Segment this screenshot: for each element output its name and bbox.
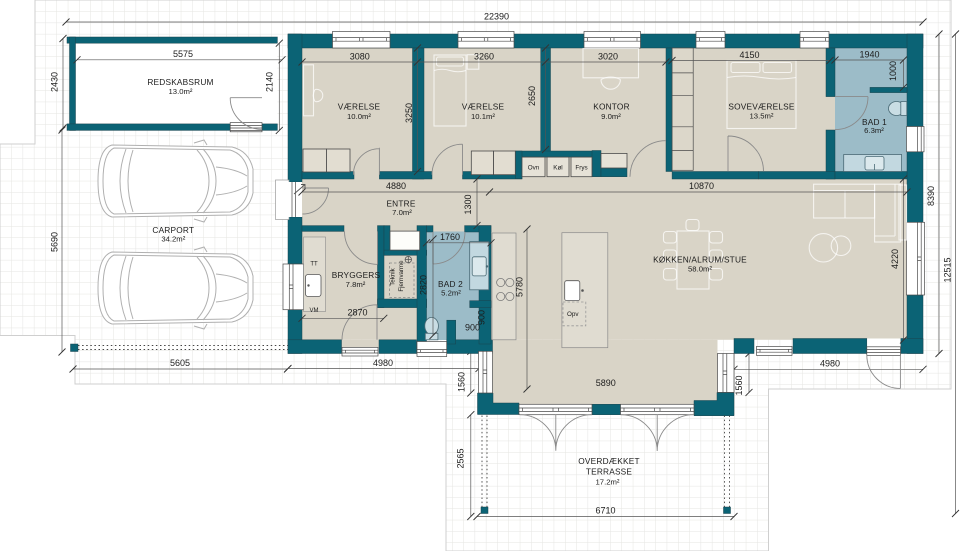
svg-text:KONTOR: KONTOR	[593, 102, 630, 112]
svg-text:3260: 3260	[474, 52, 494, 62]
svg-text:2820: 2820	[418, 275, 428, 295]
svg-text:3020: 3020	[598, 52, 618, 62]
svg-text:SOVEVÆRELSE: SOVEVÆRELSE	[728, 102, 795, 112]
svg-text:1000: 1000	[888, 61, 898, 81]
svg-text:OVERDÆKKET: OVERDÆKKET	[578, 456, 639, 466]
svg-text:7.0m²: 7.0m²	[392, 208, 412, 217]
svg-text:VÆRELSE: VÆRELSE	[338, 102, 381, 112]
svg-text:22390: 22390	[484, 12, 509, 22]
svg-text:CARPORT: CARPORT	[152, 225, 194, 235]
svg-text:Opv: Opv	[567, 311, 579, 318]
svg-text:Ovn: Ovn	[528, 164, 540, 171]
svg-text:2870: 2870	[347, 307, 367, 317]
svg-text:7.8m²: 7.8m²	[346, 280, 366, 289]
svg-text:9.0m²: 9.0m²	[601, 112, 621, 121]
svg-text:Frys: Frys	[575, 164, 587, 171]
svg-text:5690: 5690	[50, 232, 60, 252]
svg-text:10870: 10870	[689, 181, 714, 191]
svg-text:5575: 5575	[173, 49, 193, 59]
svg-text:1560: 1560	[456, 372, 466, 392]
svg-text:900: 900	[477, 310, 487, 325]
svg-text:5.2m²: 5.2m²	[441, 289, 461, 298]
svg-text:3250: 3250	[404, 103, 414, 123]
svg-text:BRYGGERS: BRYGGERS	[332, 270, 381, 280]
svg-text:17.2m²: 17.2m²	[596, 477, 620, 486]
svg-text:12515: 12515	[942, 257, 952, 282]
svg-text:Fjernvarme: Fjernvarme	[398, 260, 405, 292]
svg-text:4980: 4980	[820, 359, 840, 369]
svg-text:6710: 6710	[595, 506, 615, 516]
svg-text:TERRASSE: TERRASSE	[586, 466, 633, 476]
svg-text:4150: 4150	[739, 50, 759, 60]
svg-text:13.0m²: 13.0m²	[169, 87, 193, 96]
svg-text:2650: 2650	[527, 86, 537, 106]
svg-text:5780: 5780	[514, 277, 524, 297]
svg-text:2430: 2430	[50, 72, 60, 92]
svg-text:34.2m²: 34.2m²	[161, 235, 185, 244]
svg-text:VM: VM	[310, 308, 319, 314]
svg-text:2140: 2140	[265, 72, 275, 92]
svg-text:10.1m²: 10.1m²	[471, 112, 495, 121]
svg-text:KØKKEN/ALRUM/STUE: KØKKEN/ALRUM/STUE	[653, 254, 747, 264]
svg-text:Teknik: Teknik	[390, 267, 397, 285]
svg-text:3080: 3080	[350, 52, 370, 62]
svg-text:REDSKABSRUM: REDSKABSRUM	[147, 77, 213, 87]
svg-text:TT: TT	[310, 262, 318, 268]
svg-text:10.0m²: 10.0m²	[347, 112, 371, 121]
svg-text:6.3m²: 6.3m²	[864, 126, 884, 135]
svg-text:BAD 2: BAD 2	[438, 279, 463, 289]
svg-text:1300: 1300	[463, 194, 473, 214]
svg-text:VÆRELSE: VÆRELSE	[462, 102, 505, 112]
svg-text:4220: 4220	[890, 249, 900, 269]
svg-text:1760: 1760	[440, 232, 460, 242]
svg-text:4880: 4880	[386, 181, 406, 191]
svg-text:4980: 4980	[373, 358, 393, 368]
svg-text:1940: 1940	[859, 50, 879, 60]
svg-text:1560: 1560	[734, 375, 744, 395]
svg-text:5890: 5890	[596, 378, 616, 388]
svg-text:2565: 2565	[456, 448, 466, 468]
svg-text:5605: 5605	[170, 358, 190, 368]
svg-text:58.0m²: 58.0m²	[688, 265, 712, 274]
svg-text:13.5m²: 13.5m²	[750, 112, 774, 121]
svg-text:8390: 8390	[926, 186, 936, 206]
svg-text:Køl: Køl	[553, 164, 562, 171]
